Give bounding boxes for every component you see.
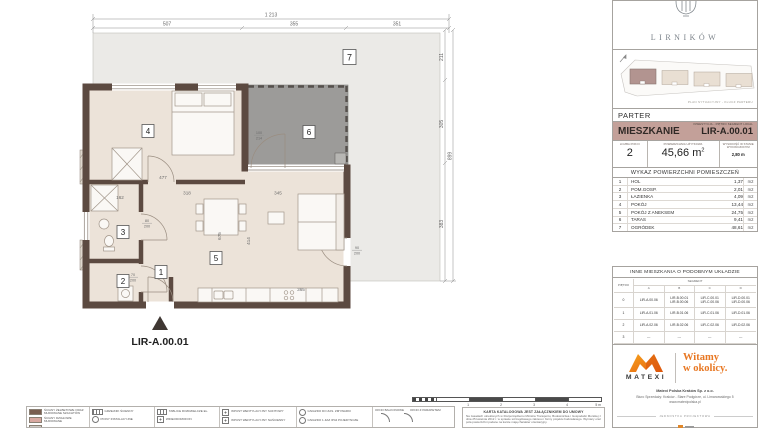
site-plan-box: PLAN SYTUACYJNY - KLUCZ PARTERU: [612, 49, 758, 109]
wardrobe: [112, 148, 142, 180]
similar-unit: LIR-B.00.01 LIR-B.00.06: [665, 293, 696, 308]
toilet: [104, 236, 115, 252]
similar-table: PIĘTRO SEGMENT A B C D 0 LIR-A.00.06 LIR…: [612, 277, 758, 345]
room-number-4: 4: [142, 125, 154, 138]
table-row: 5POKÓJ Z ANEKSEM24,75m2: [613, 209, 757, 217]
svg-text:4: 4: [146, 127, 151, 136]
rooms-count: 2: [627, 147, 633, 159]
dim-seg: 305: [439, 120, 445, 129]
svg-text:7: 7: [347, 53, 352, 63]
stats-row: LICZBA POKOI 2 POWIERZCHNIA UŻYTKOWA 45,…: [612, 140, 758, 168]
table-row: 2POM.GOSP.2,01m2: [613, 186, 757, 194]
svg-text:1: 1: [159, 268, 164, 277]
svg-text:477: 477: [159, 175, 167, 180]
table-row: 7OGRÓDEK48,61m2: [613, 224, 757, 231]
catalog-sheet: 1 213 507 355 351 211 305 383 899: [0, 0, 760, 428]
wall-vent-icon: [222, 417, 229, 424]
similar-unit: LIR-B.02.06: [665, 320, 696, 332]
brand-box: LIRNIKÓW: [612, 0, 758, 50]
similar-unit: LIR-D.01.06: [726, 308, 757, 320]
disclaimer-title: KARTA KATALOGOWA JEST ZAŁĄCZNIKIEM DO UM…: [466, 410, 601, 414]
dim-total-right: 899: [448, 152, 454, 161]
similar-unit: LIR-A.02.06: [634, 320, 665, 332]
rooms-table: 1HOL1,37m2 2POM.GOSP.2,01m2 3ŁAZIENKA4,0…: [612, 177, 758, 232]
svg-text:214: 214: [256, 137, 262, 141]
disclaimer-box: KARTA KATALOGOWA JEST ZAŁĄCZNIKIEM DO UM…: [462, 407, 605, 428]
unit-section-label: MIESZKANIE: [613, 126, 680, 137]
table-row: 1HOL1,37m2: [613, 178, 757, 186]
legend-installations: GRZEJNIK ŚCIENNY PIONY INSTALACYJNE: [90, 407, 155, 427]
room-number-6: 6: [303, 126, 315, 139]
matexi-wordmark: MATEXI: [623, 374, 669, 381]
developer-box: MATEXI Witamy w okolicy. Matexi Polska K…: [612, 344, 758, 428]
segment-header: SEGMENT: [634, 279, 756, 286]
scale-bar: [412, 397, 602, 402]
site-plan: [613, 50, 757, 102]
table-row: 3ŁAZIENKA4,09m2: [613, 193, 757, 201]
floor-band: PARTER: [612, 108, 758, 122]
intercom-icon: [157, 416, 164, 423]
svg-text:5: 5: [214, 254, 219, 263]
kitchen-sink: [214, 291, 223, 299]
terrace: [248, 85, 348, 167]
divider: [675, 353, 676, 383]
dim-seg: 507: [163, 22, 172, 28]
partition-swatch-icon: [29, 417, 42, 423]
legend-strip: ŚCIANY ŻELBETOWE ORAZ MUROWANE SZACHTÓW …: [26, 406, 455, 428]
svg-text:345: 345: [274, 191, 282, 196]
unit-band: MIESZKANIE INWESTYCJA - PIĘTRO SEGMENT L…: [612, 121, 758, 141]
legend-walls: ŚCIANY ŻELBETOWE ORAZ MUROWANE SZACHTÓW …: [27, 407, 90, 427]
plan-unit-code: LIR-A.00.01: [131, 336, 188, 348]
unit-code: LIR-A.00.01: [693, 127, 753, 137]
dim-seg: 351: [393, 22, 402, 28]
developer-address: Matexi Polska Kraków Sp. z o.o. Biuro Sp…: [613, 389, 757, 405]
shower: [91, 185, 118, 211]
svg-text:100: 100: [256, 131, 262, 135]
room-number-3: 3: [117, 226, 129, 239]
similar-unit: ---: [726, 332, 757, 344]
legend-windows: OKNO BALKONOWE OKNO Z PARAPETEM: [373, 407, 454, 427]
wall-swatch-icon: [29, 409, 42, 415]
dim-seg: 211: [439, 53, 445, 61]
room-number-7: 7: [343, 50, 356, 65]
entrance-triangle-icon: [152, 316, 168, 330]
similar-unit: LIR-C.00.01 LIR-C.00.06: [695, 293, 726, 308]
svg-text:318: 318: [183, 191, 191, 196]
radiator-icon: [92, 409, 103, 415]
floor-label: PARTER: [613, 111, 651, 120]
similar-unit: ---: [695, 332, 726, 344]
stat-height: WYSOKOŚĆ W STANIE WYKOŃCZONYM 2,80 m: [720, 141, 757, 167]
svg-text:414: 414: [246, 237, 251, 245]
dim-seg: 355: [290, 22, 299, 28]
window-sill-icon: [404, 413, 413, 422]
svg-text:162: 162: [116, 195, 124, 200]
tagline: Witamy w okolicy.: [683, 352, 727, 375]
dim-total-top: 1 213: [265, 13, 278, 19]
similar-unit: ---: [665, 332, 696, 344]
website-link: www.matexipolska.pl: [613, 400, 757, 405]
svg-text:90: 90: [355, 246, 359, 250]
disclaimer-body: Na zasadach określonych w Rozporządzeniu…: [466, 415, 601, 425]
similar-unit: LIR-B.01.06: [665, 308, 696, 320]
sofa: [298, 194, 344, 250]
switchboard-icon: [157, 409, 167, 415]
usable-area: 45,66 m2: [662, 147, 705, 159]
other-swatch-icon: [29, 425, 42, 427]
svg-text:200: 200: [144, 225, 150, 229]
svg-text:200: 200: [130, 279, 136, 283]
brand-name: LIRNIKÓW: [613, 33, 757, 42]
cooktop: [284, 291, 288, 295]
svg-text:6: 6: [307, 128, 312, 137]
design-studio-logo-icon: [676, 424, 696, 428]
north-arrow-icon: [620, 55, 626, 62]
lyre-icon: [613, 1, 759, 19]
kitchen: [198, 288, 338, 302]
room-number-2: 2: [117, 275, 129, 288]
svg-text:80: 80: [145, 219, 149, 223]
svg-text:200: 200: [354, 252, 360, 256]
floor-plan: 1 213 507 355 351 211 305 383 899: [0, 0, 612, 400]
socket-dishwasher-icon: [299, 409, 306, 416]
similar-unit: LIR-D.00.01 LIR-D.00.06: [726, 293, 757, 308]
design-unit-row: JEDNOSTKA PROJEKTOWA: [617, 415, 753, 418]
similar-unit: LIR-A.00.06: [634, 293, 665, 308]
ceiling-height: 2,80 m: [732, 152, 745, 157]
svg-text:2: 2: [121, 277, 126, 286]
dim-seg: 383: [439, 220, 445, 229]
socket-ip44-icon: [299, 417, 306, 424]
stat-rooms: LICZBA POKOI 2: [613, 141, 648, 167]
washbasin: [99, 219, 109, 229]
legend-sockets: GNIAZDO DO ZAS. ZMYWARKI GNIAZDO 1-FAZ I…: [297, 407, 373, 427]
washing-machine: [118, 286, 133, 301]
ceiling-vent-icon: [222, 409, 229, 416]
table-row: 4POKÓJ13,44m2: [613, 201, 757, 209]
coffee-table: [268, 212, 284, 224]
riser-icon: [92, 416, 99, 423]
room-number-1: 1: [155, 266, 167, 279]
terrace-mat: [335, 153, 346, 164]
svg-text:3: 3: [121, 228, 126, 237]
svg-text:365: 365: [297, 287, 305, 292]
site-plan-caption: PLAN SYTUACYJNY - KLUCZ PARTERU: [688, 100, 753, 104]
window-balcony-icon: [381, 413, 390, 422]
floor-col-header: PIĘTRO: [614, 279, 634, 293]
svg-text:70: 70: [131, 273, 135, 277]
similar-unit: LIR-D.02.06: [726, 320, 757, 332]
table-row: 6TARAS9,41m2: [613, 217, 757, 225]
similar-unit: LIR-A.01.06: [634, 308, 665, 320]
matexi-logo-icon: [627, 351, 665, 373]
similar-unit: ---: [634, 332, 665, 344]
legend-ventilation: WPUST WENTYLACYJNY SUFITOWY WPUST WENTYL…: [220, 407, 296, 427]
similar-unit: LIR-C.02.06: [695, 320, 726, 332]
stat-area: POWIERZCHNIA UŻYTKOWA 45,66 m2: [648, 141, 720, 167]
legend-electrical: TABLICE ROZDZIELCZE EL. WIDEODOMOFON: [155, 407, 220, 427]
similar-unit: LIR-C.01.06: [695, 308, 726, 320]
svg-text:675: 675: [217, 232, 222, 240]
room-number-5: 5: [210, 252, 222, 265]
